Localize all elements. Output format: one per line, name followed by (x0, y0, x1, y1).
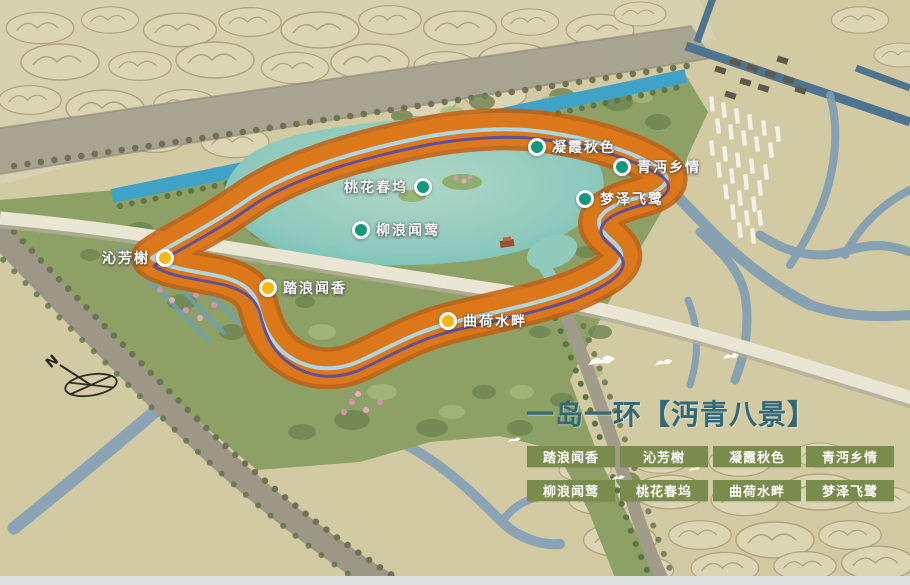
masterplan-canvas: N 凝霞秋色 青沔乡情 桃花春坞 梦泽飞鹭 柳浪闻莺 沁芳榭 踏浪闻香 曲荷水畔… (0, 0, 910, 585)
marker-dot (528, 138, 546, 156)
marker-dot (352, 221, 370, 239)
marker-label: 桃花春坞 (344, 177, 408, 197)
marker-dot (259, 279, 277, 297)
marker-talang-wenxiang[interactable]: 踏浪闻香 (259, 278, 347, 298)
legend-badge-taohua-chunwu[interactable]: 桃花春坞 (620, 480, 708, 501)
legend-badge-qingmian-xiangqing[interactable]: 青沔乡情 (806, 446, 894, 467)
marker-label: 凝霞秋色 (552, 137, 616, 157)
marker-label: 踏浪闻香 (283, 278, 347, 298)
marker-label: 沁芳榭 (102, 248, 150, 268)
marker-dot (156, 249, 174, 267)
legend-badge-qinfang-xie[interactable]: 沁芳榭 (620, 446, 708, 467)
marker-qingmian-xiangqing[interactable]: 青沔乡情 (613, 157, 701, 177)
marker-dot (613, 158, 631, 176)
marker-dot (576, 190, 594, 208)
marker-mengze-feilu[interactable]: 梦泽飞鹭 (576, 189, 664, 209)
marker-label: 梦泽飞鹭 (600, 189, 664, 209)
legend-badge-ningxia-qiuse[interactable]: 凝霞秋色 (713, 446, 801, 467)
marker-label: 柳浪闻莺 (376, 220, 440, 240)
plan-title: 一岛一环【沔青八景】 (526, 393, 816, 433)
legend-badge-mengze-feilu[interactable]: 梦泽飞鹭 (806, 480, 894, 501)
legend-badge-quhe-shuipan[interactable]: 曲荷水畔 (713, 480, 801, 501)
marker-label: 青沔乡情 (637, 157, 701, 177)
marker-liulang-wenying[interactable]: 柳浪闻莺 (352, 220, 440, 240)
bottom-border-strip (0, 576, 910, 585)
marker-taohua-chunwu[interactable]: 桃花春坞 (344, 177, 432, 197)
marker-qinfang-xie[interactable]: 沁芳榭 (102, 248, 174, 268)
marker-quhe-shuipan[interactable]: 曲荷水畔 (439, 311, 527, 331)
marker-dot (414, 178, 432, 196)
marker-label: 曲荷水畔 (463, 311, 527, 331)
legend-badge-liulang-wenying[interactable]: 柳浪闻莺 (527, 480, 615, 501)
legend: 踏浪闻香 沁芳榭 凝霞秋色 青沔乡情 柳浪闻莺 桃花春坞 曲荷水畔 梦泽飞鹭 (527, 446, 894, 501)
marker-dot (439, 312, 457, 330)
legend-badge-talang-wenxiang[interactable]: 踏浪闻香 (527, 446, 615, 467)
marker-ningxia-qiuse[interactable]: 凝霞秋色 (528, 137, 616, 157)
